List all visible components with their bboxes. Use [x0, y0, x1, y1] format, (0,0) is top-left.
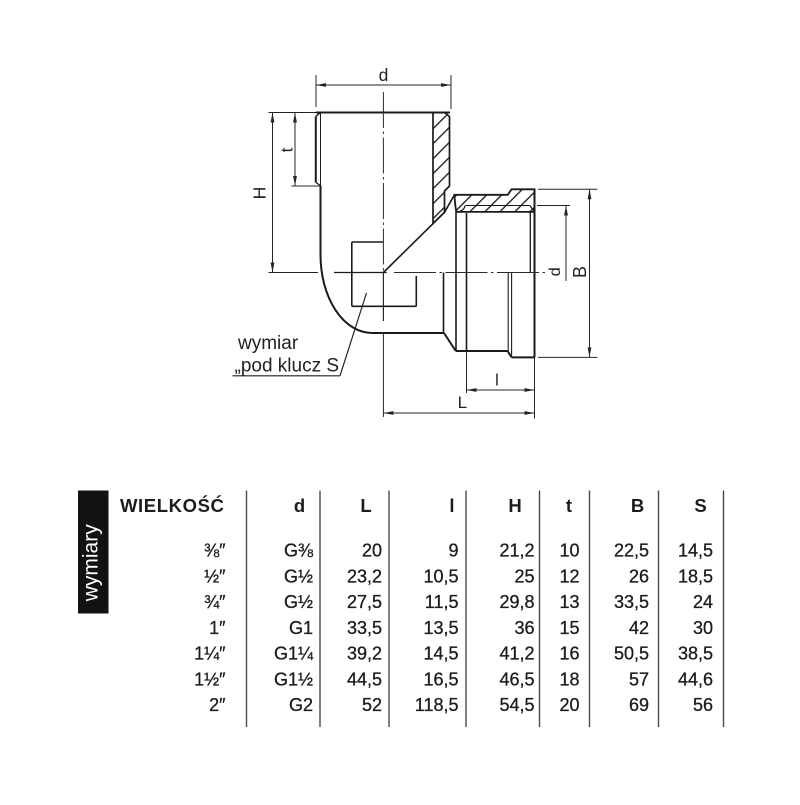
svg-text:d: d — [294, 495, 305, 516]
svg-text:¾″: ¾″ — [204, 592, 226, 612]
svg-text:WIELKOŚĆ: WIELKOŚĆ — [120, 495, 225, 516]
svg-text:L: L — [360, 495, 371, 516]
svg-text:54,5: 54,5 — [499, 695, 534, 715]
svg-text:69: 69 — [629, 695, 649, 715]
svg-text:52: 52 — [362, 695, 382, 715]
svg-text:d: d — [379, 65, 389, 85]
svg-text:16: 16 — [559, 644, 579, 664]
svg-text:21,2: 21,2 — [499, 541, 534, 561]
svg-text:10: 10 — [559, 541, 579, 561]
svg-text:30: 30 — [693, 618, 713, 638]
svg-text:23,2: 23,2 — [347, 566, 382, 586]
svg-text:13,5: 13,5 — [423, 618, 458, 638]
svg-text:B: B — [570, 266, 590, 278]
svg-text:38,5: 38,5 — [678, 644, 713, 664]
svg-text:½″: ½″ — [204, 566, 226, 586]
svg-text:27,5: 27,5 — [347, 592, 382, 612]
svg-text:G1: G1 — [289, 618, 313, 638]
svg-text:13: 13 — [559, 592, 579, 612]
svg-text:1¼″: 1¼″ — [194, 644, 226, 664]
svg-text:11,5: 11,5 — [425, 592, 459, 612]
svg-text:41,2: 41,2 — [499, 644, 534, 664]
svg-text:wymiary: wymiary — [80, 524, 103, 602]
svg-text:15: 15 — [559, 618, 579, 638]
svg-text:42: 42 — [629, 618, 649, 638]
svg-text:25: 25 — [514, 566, 534, 586]
svg-text:22,5: 22,5 — [614, 541, 649, 561]
svg-text:B: B — [631, 495, 644, 516]
svg-text:H: H — [249, 187, 269, 200]
svg-text:29,8: 29,8 — [499, 592, 534, 612]
svg-text:1½″: 1½″ — [194, 669, 226, 689]
svg-text:118,5: 118,5 — [415, 695, 459, 715]
svg-text:2″: 2″ — [209, 695, 226, 715]
svg-text:wymiar: wymiar — [237, 333, 299, 354]
svg-text:l: l — [449, 495, 454, 516]
svg-text:24: 24 — [693, 592, 713, 612]
svg-text:33,5: 33,5 — [614, 592, 649, 612]
svg-text:„pod klucz S: „pod klucz S — [235, 356, 340, 377]
svg-text:50,5: 50,5 — [614, 644, 649, 664]
svg-text:H: H — [508, 495, 521, 516]
svg-text:S: S — [694, 495, 706, 516]
svg-text:44,5: 44,5 — [347, 669, 382, 689]
svg-text:9: 9 — [448, 541, 458, 561]
svg-text:⅜″: ⅜″ — [204, 541, 226, 561]
svg-text:1″: 1″ — [209, 618, 226, 638]
svg-text:20: 20 — [559, 695, 579, 715]
svg-text:G1¼: G1¼ — [274, 644, 314, 664]
svg-text:44,6: 44,6 — [678, 669, 713, 689]
svg-text:L: L — [458, 393, 467, 412]
svg-text:t: t — [566, 495, 572, 516]
svg-text:l: l — [495, 372, 499, 390]
svg-text:39,2: 39,2 — [347, 644, 382, 664]
svg-text:33,5: 33,5 — [347, 618, 382, 638]
svg-text:14,5: 14,5 — [423, 644, 458, 664]
svg-text:G½: G½ — [284, 592, 313, 612]
svg-text:57: 57 — [629, 669, 649, 689]
svg-text:t: t — [278, 147, 297, 152]
svg-text:G½: G½ — [284, 566, 313, 586]
svg-text:12: 12 — [559, 566, 579, 586]
svg-text:18,5: 18,5 — [678, 566, 713, 586]
svg-text:G1½: G1½ — [274, 669, 313, 689]
svg-text:20: 20 — [362, 541, 382, 561]
svg-text:26: 26 — [629, 566, 649, 586]
svg-text:10,5: 10,5 — [423, 566, 458, 586]
svg-text:14,5: 14,5 — [678, 541, 713, 561]
svg-text:16,5: 16,5 — [423, 669, 458, 689]
svg-text:d: d — [547, 267, 564, 276]
svg-text:18: 18 — [559, 669, 579, 689]
svg-text:36: 36 — [514, 618, 534, 638]
svg-text:G⅜: G⅜ — [284, 541, 314, 561]
svg-text:G2: G2 — [289, 695, 313, 715]
svg-text:46,5: 46,5 — [499, 669, 534, 689]
svg-text:56: 56 — [693, 695, 713, 715]
